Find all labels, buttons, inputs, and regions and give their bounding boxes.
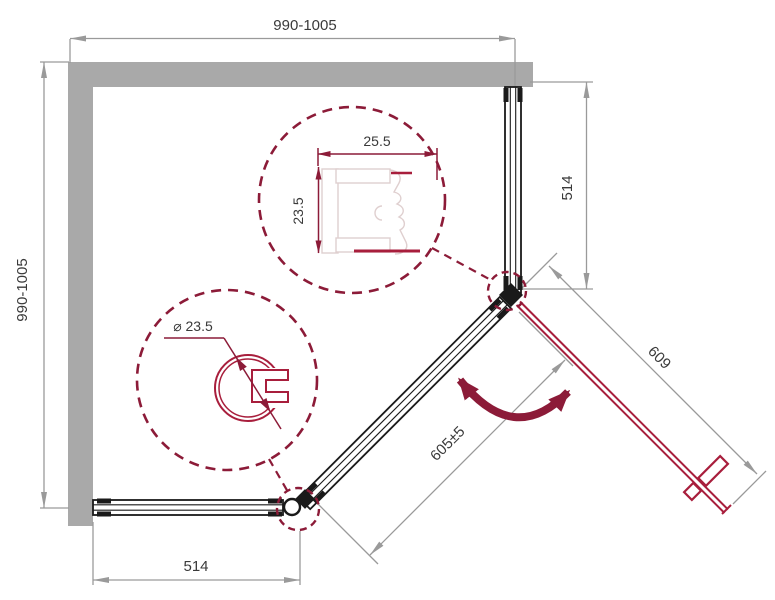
label-door-width: 609 [644, 343, 674, 373]
walls [68, 62, 533, 526]
label-top-width: 990-1005 [273, 17, 336, 34]
wall-left [68, 62, 93, 526]
dimension-left-depth [40, 62, 69, 508]
label-left-depth: 990-1005 [14, 258, 31, 321]
fixed-panel-bottom [93, 499, 283, 517]
label-bottom-panel: 514 [183, 558, 208, 575]
label-right-panel: 514 [559, 175, 576, 200]
dimension-bottom-panel [93, 522, 300, 585]
wall-profile-section [318, 148, 437, 254]
leader-corner-post [269, 459, 288, 492]
corner-post-profile-section [164, 338, 288, 429]
label-diagonal-opening: 605±5 [427, 423, 468, 464]
dimension-door [521, 253, 766, 504]
dimension-right-panel [513, 82, 593, 289]
label-post-diameter: ⌀ 23.5 [173, 318, 213, 334]
leader-wall-profile [432, 248, 489, 279]
shower-enclosure-diagram: 990-1005 990-1005 514 514 609 605±5 25.5… [0, 0, 775, 600]
wall-top [68, 62, 533, 87]
fixed-panel-right [504, 87, 523, 293]
detail-circle-wall-profile [259, 107, 445, 293]
label-profile-depth: 23.5 [290, 197, 306, 224]
label-profile-width: 25.5 [363, 133, 390, 149]
corner-post-bottom [284, 499, 300, 515]
diagram-canvas: 990-1005 990-1005 514 514 609 605±5 25.5… [0, 0, 775, 600]
